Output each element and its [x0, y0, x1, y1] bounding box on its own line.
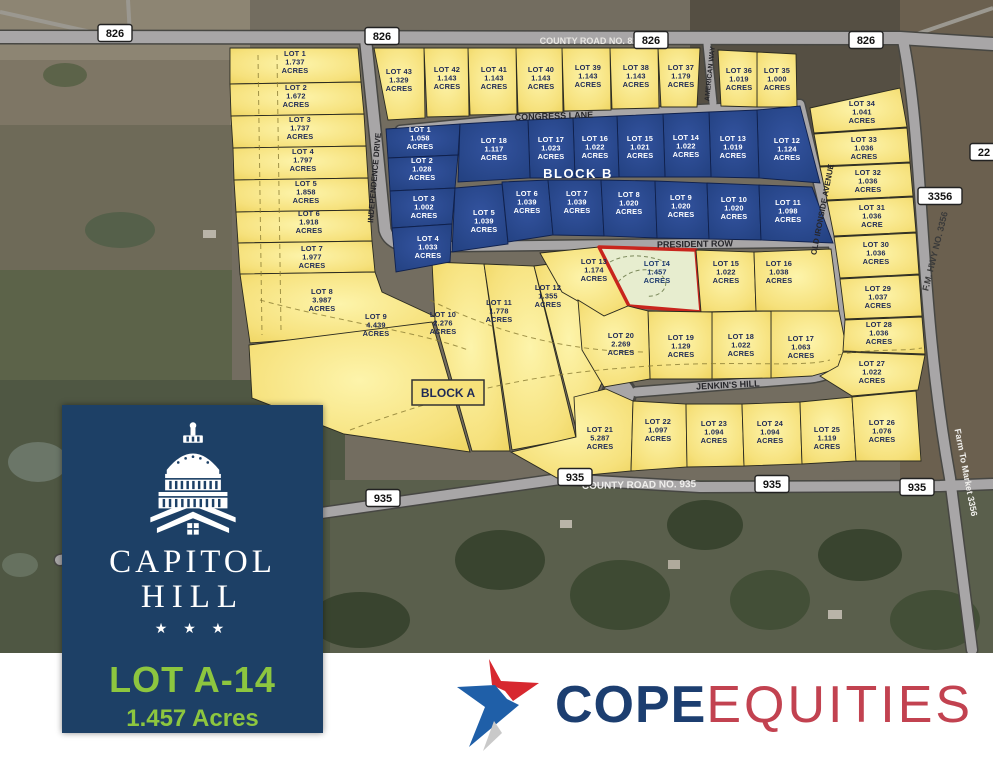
lot-A34-unit: ACRES: [849, 116, 876, 125]
cope-wordmark: COPE: [555, 675, 706, 735]
lot-B2-unit: ACRES: [409, 173, 436, 182]
lot-B11-unit: ACRES: [775, 215, 802, 224]
lot-A9-unit: ACRES: [363, 329, 390, 338]
lot-A17-unit: ACRES: [788, 351, 815, 360]
lot-A29-unit: ACRES: [865, 301, 892, 310]
block-b-label-group: BLOCK B: [543, 166, 613, 181]
lot-A25-unit: ACRES: [814, 442, 841, 451]
road-label-0: COUNTY ROAD NO. 826: [540, 36, 643, 46]
lot-B14-unit: ACRES: [673, 150, 700, 159]
lot-B10-unit: ACRES: [721, 212, 748, 221]
lot-A26-unit: ACRES: [869, 435, 896, 444]
badge-935-4: 935: [374, 493, 392, 505]
lot-A30-unit: ACRES: [863, 257, 890, 266]
lot-A24-unit: ACRES: [757, 436, 784, 445]
lot-A43-unit: ACRES: [386, 84, 413, 93]
lot-A39-unit: ACRES: [575, 80, 602, 89]
lot-A7-unit: ACRES: [299, 261, 326, 270]
lot-A33-unit: ACRES: [851, 152, 878, 161]
lot-A20-unit: ACRES: [608, 348, 635, 357]
lot-A28-unit: ACRES: [866, 337, 893, 346]
lot-A11-unit: ACRES: [486, 315, 513, 324]
featured-lot-acreage: 1.457 Acres: [126, 705, 259, 733]
pond: [8, 442, 68, 482]
featured-lot-title: LOT A-14: [109, 659, 276, 701]
badge-826-2: 826: [642, 35, 660, 47]
capitol-hill-panel: CAPITOL HILL ★ ★ ★ LOT A-14 1.457 Acres: [62, 405, 323, 733]
lot-A2-unit: ACRES: [283, 100, 310, 109]
lot-A16-unit: ACRES: [766, 276, 793, 285]
lot-A4-unit: ACRES: [290, 164, 317, 173]
lot-A19-unit: ACRES: [668, 350, 695, 359]
lot-B7-unit: ACRES: [564, 206, 591, 215]
lot-A27-unit: ACRES: [859, 376, 886, 385]
lot-A14-unit: ACRES: [644, 276, 671, 285]
badge-3356-8: 3356: [928, 191, 952, 203]
lot-B5-unit: ACRES: [471, 225, 498, 234]
lot-A37-unit: ACRES: [668, 80, 695, 89]
badge-826-0: 826: [106, 28, 124, 40]
cope-star-icon: [455, 655, 547, 755]
lot-B1-unit: ACRES: [407, 142, 434, 151]
lot-B4-unit: ACRES: [415, 251, 442, 260]
block-a-label: BLOCK A: [421, 386, 476, 400]
lot-A36-unit: ACRES: [726, 83, 753, 92]
lot-A21-unit: ACRES: [587, 442, 614, 451]
lot-B9-unit: ACRES: [668, 210, 695, 219]
road-label-1: COUNTY ROAD NO. 935: [582, 479, 697, 492]
lot-A1-unit: ACRES: [282, 66, 309, 75]
badge-22-9: 22: [978, 147, 990, 159]
lot-A12-unit: ACRES: [535, 300, 562, 309]
badge-935-6: 935: [763, 479, 781, 491]
badge-935-5: 935: [566, 472, 584, 484]
lot-A42-unit: ACRES: [434, 82, 461, 91]
lot-A5-unit: ACRES: [293, 196, 320, 205]
lot-A32-unit: ACRES: [855, 185, 882, 194]
cope-equities-logo: COPEEQUITIES: [455, 650, 993, 760]
lot-A38-unit: ACRES: [623, 80, 650, 89]
badge-935-7: 935: [908, 482, 926, 494]
capitol-wordmark-line1: CAPITOL: [109, 546, 276, 579]
lot-A3-unit: ACRES: [287, 132, 314, 141]
lot-B13-unit: ACRES: [720, 151, 747, 160]
badge-826-3: 826: [857, 35, 875, 47]
lot-A18-unit: ACRES: [728, 349, 755, 358]
lot-B16-unit: ACRES: [582, 151, 609, 160]
lot-B3-unit: ACRES: [411, 211, 438, 220]
lot-A40-unit: ACRES: [528, 82, 555, 91]
lot-A13-unit: ACRES: [581, 274, 608, 283]
block-a-label-group: BLOCK A: [412, 380, 484, 405]
badge-826-1: 826: [373, 31, 391, 43]
lot-A31-unit: ACRE: [861, 220, 883, 229]
capitol-dome-icon: [134, 419, 252, 542]
road-label-3: PRESIDENT ROW: [657, 238, 734, 249]
three-stars-icon: ★ ★ ★: [155, 620, 230, 637]
lot-B15-unit: ACRES: [627, 151, 654, 160]
flyer-canvas: LOT 11.737ACRESLOT 21.672ACRESLOT 31.737…: [0, 0, 993, 768]
lot-B8-unit: ACRES: [616, 207, 643, 216]
capitol-wordmark-line2: HILL: [141, 581, 244, 614]
lot-A35-unit: ACRES: [764, 83, 791, 92]
lot-B18-unit: ACRES: [481, 153, 508, 162]
lot-A8-unit: ACRES: [309, 304, 336, 313]
equities-wordmark: EQUITIES: [706, 675, 973, 735]
lot-A41-unit: ACRES: [481, 82, 508, 91]
lot-A10-unit: ACRES: [430, 327, 457, 336]
lot-A15-unit: ACRES: [713, 276, 740, 285]
lot-A23-unit: ACRES: [701, 436, 728, 445]
lot-A22-unit: ACRES: [645, 434, 672, 443]
block-b-label: BLOCK B: [543, 166, 613, 181]
lot-B6-unit: ACRES: [514, 206, 541, 215]
lot-B17-unit: ACRES: [538, 152, 565, 161]
lot-B12-unit: ACRES: [774, 153, 801, 162]
lot-A6-unit: ACRES: [296, 226, 323, 235]
